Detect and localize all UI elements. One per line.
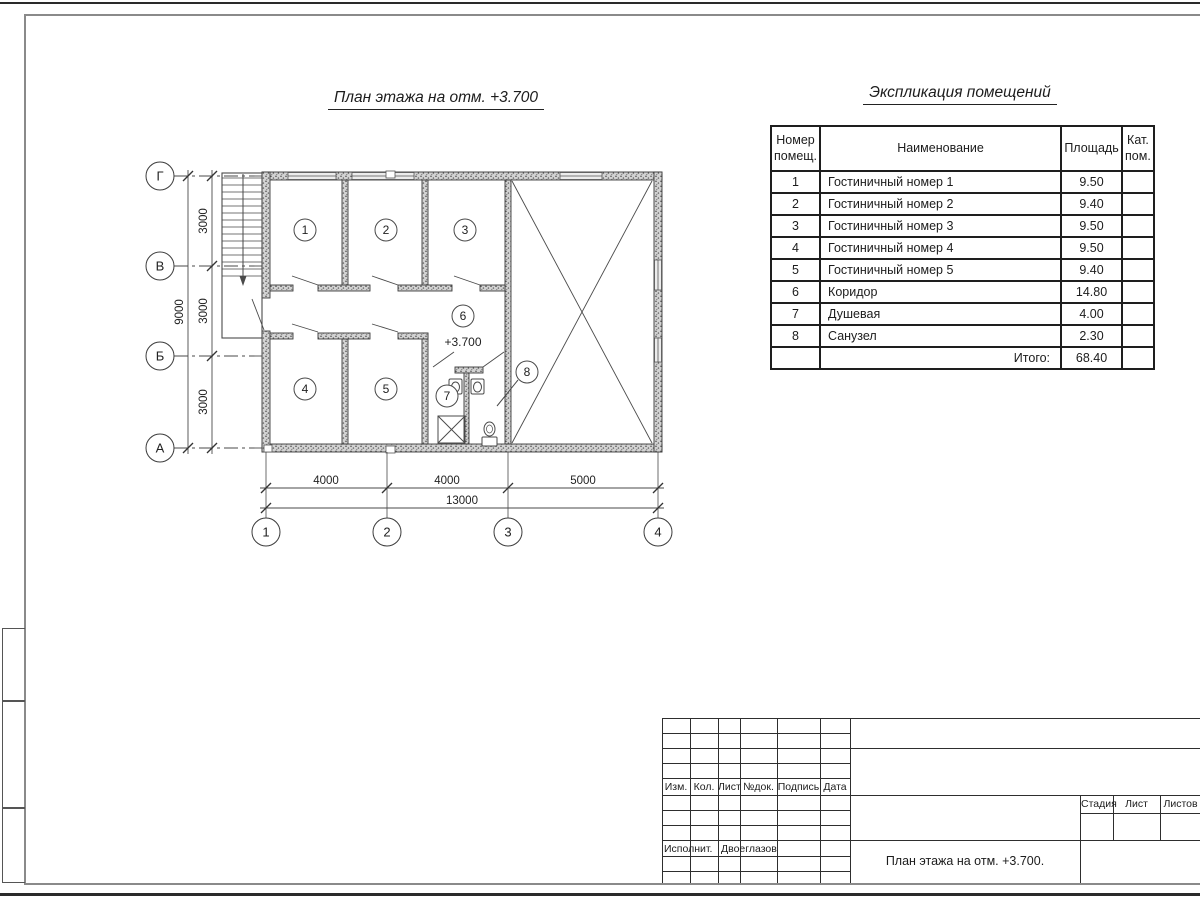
room-label: 1	[302, 223, 309, 237]
stamp-col-ndoc: №док.	[740, 781, 777, 793]
washbasin-icon	[471, 379, 484, 394]
axis-label: В	[156, 259, 165, 274]
sheet-label: Лист	[1114, 798, 1159, 810]
executor-label: Исполнит.	[664, 843, 712, 855]
axis-label: 4	[654, 525, 661, 540]
dimension-labels: 4000 4000 5000 13000 3000 3000 3000 9000	[174, 208, 596, 507]
stamp-col-izm: Изм.	[663, 781, 689, 793]
table-total-row: Итого:68.40	[771, 347, 1154, 369]
floor-plan: 4000 4000 5000 13000 3000 3000 3000 9000…	[0, 0, 760, 570]
room-label: 2	[383, 223, 390, 237]
table-row: 3Гостиничный номер 39.50	[771, 215, 1154, 237]
explication-table: Номер помещ. Наименование Площадь Кат. п…	[770, 125, 1155, 370]
dim-label: 13000	[446, 495, 478, 507]
stamp-col-podpis: Подпись	[777, 781, 820, 793]
dim-label: 9000	[174, 299, 186, 325]
table-row: 2Гостиничный номер 29.40	[771, 193, 1154, 215]
dim-label: 4000	[434, 475, 460, 487]
dim-label: 4000	[313, 475, 339, 487]
frame-side-box	[2, 628, 25, 702]
table-row: 6Коридор14.80	[771, 281, 1154, 303]
executor-name: Двоеглазов	[721, 843, 777, 855]
room-label: 7	[444, 389, 451, 403]
staircase	[222, 173, 262, 338]
dim-label: 3000	[198, 298, 210, 324]
table-row: 1Гостиничный номер 19.50	[771, 171, 1154, 193]
sheets-label: Листов	[1161, 798, 1200, 810]
frame-side-box	[2, 700, 25, 809]
stamp-col-kol: Кол.	[691, 781, 717, 793]
col-header-category: Кат. пом.	[1122, 126, 1154, 171]
explication-title: Экспликация помещений	[845, 84, 1075, 102]
document-title: План этажа на отм. +3.700.	[852, 854, 1078, 868]
stamp-col-list: Лист	[718, 781, 740, 793]
room-label: 5	[383, 382, 390, 396]
axis-label: 3	[504, 525, 511, 540]
col-header-area: Площадь	[1061, 126, 1122, 171]
dim-label: 3000	[198, 389, 210, 415]
room-label: 8	[524, 365, 531, 379]
table-row: 8Санузел2.30	[771, 325, 1154, 347]
table-row: 5Гостиничный номер 59.40	[771, 259, 1154, 281]
toilet-icon	[482, 422, 497, 446]
axis-label: А	[156, 441, 165, 456]
frame-side-box	[2, 807, 25, 883]
col-header-number: Номер помещ.	[771, 126, 820, 171]
axis-label: Г	[156, 169, 163, 184]
table-header-row: Номер помещ. Наименование Площадь Кат. п…	[771, 126, 1154, 171]
axis-label: 2	[383, 525, 390, 540]
shower-tray-icon	[438, 416, 465, 443]
dim-label: 5000	[570, 475, 596, 487]
room-bubbles	[294, 219, 538, 407]
axis-label: Б	[156, 349, 165, 364]
void-area-cross	[512, 181, 652, 443]
drawing-sheet: План этажа на отм. +3.700 Экспликация по…	[0, 0, 1200, 900]
elevation-mark: +3.700	[444, 335, 481, 349]
stage-label: Стадия	[1081, 798, 1112, 810]
stair-down-arrow	[240, 276, 247, 286]
col-header-name: Наименование	[820, 126, 1061, 171]
dim-label: 3000	[198, 208, 210, 234]
table-row: 4Гостиничный номер 49.50	[771, 237, 1154, 259]
axis-label: 1	[262, 525, 269, 540]
stamp-col-data: Дата	[820, 781, 850, 793]
room-bubble-labels: 1 2 3 4 5 6 7 8 +3.700	[302, 223, 531, 403]
room-label: 3	[462, 223, 469, 237]
page-bottom-edge	[0, 893, 1200, 896]
room-label: 4	[302, 382, 309, 396]
table-row: 7Душевая4.00	[771, 303, 1154, 325]
room-label: 6	[460, 309, 467, 323]
axis-lines	[174, 176, 262, 448]
